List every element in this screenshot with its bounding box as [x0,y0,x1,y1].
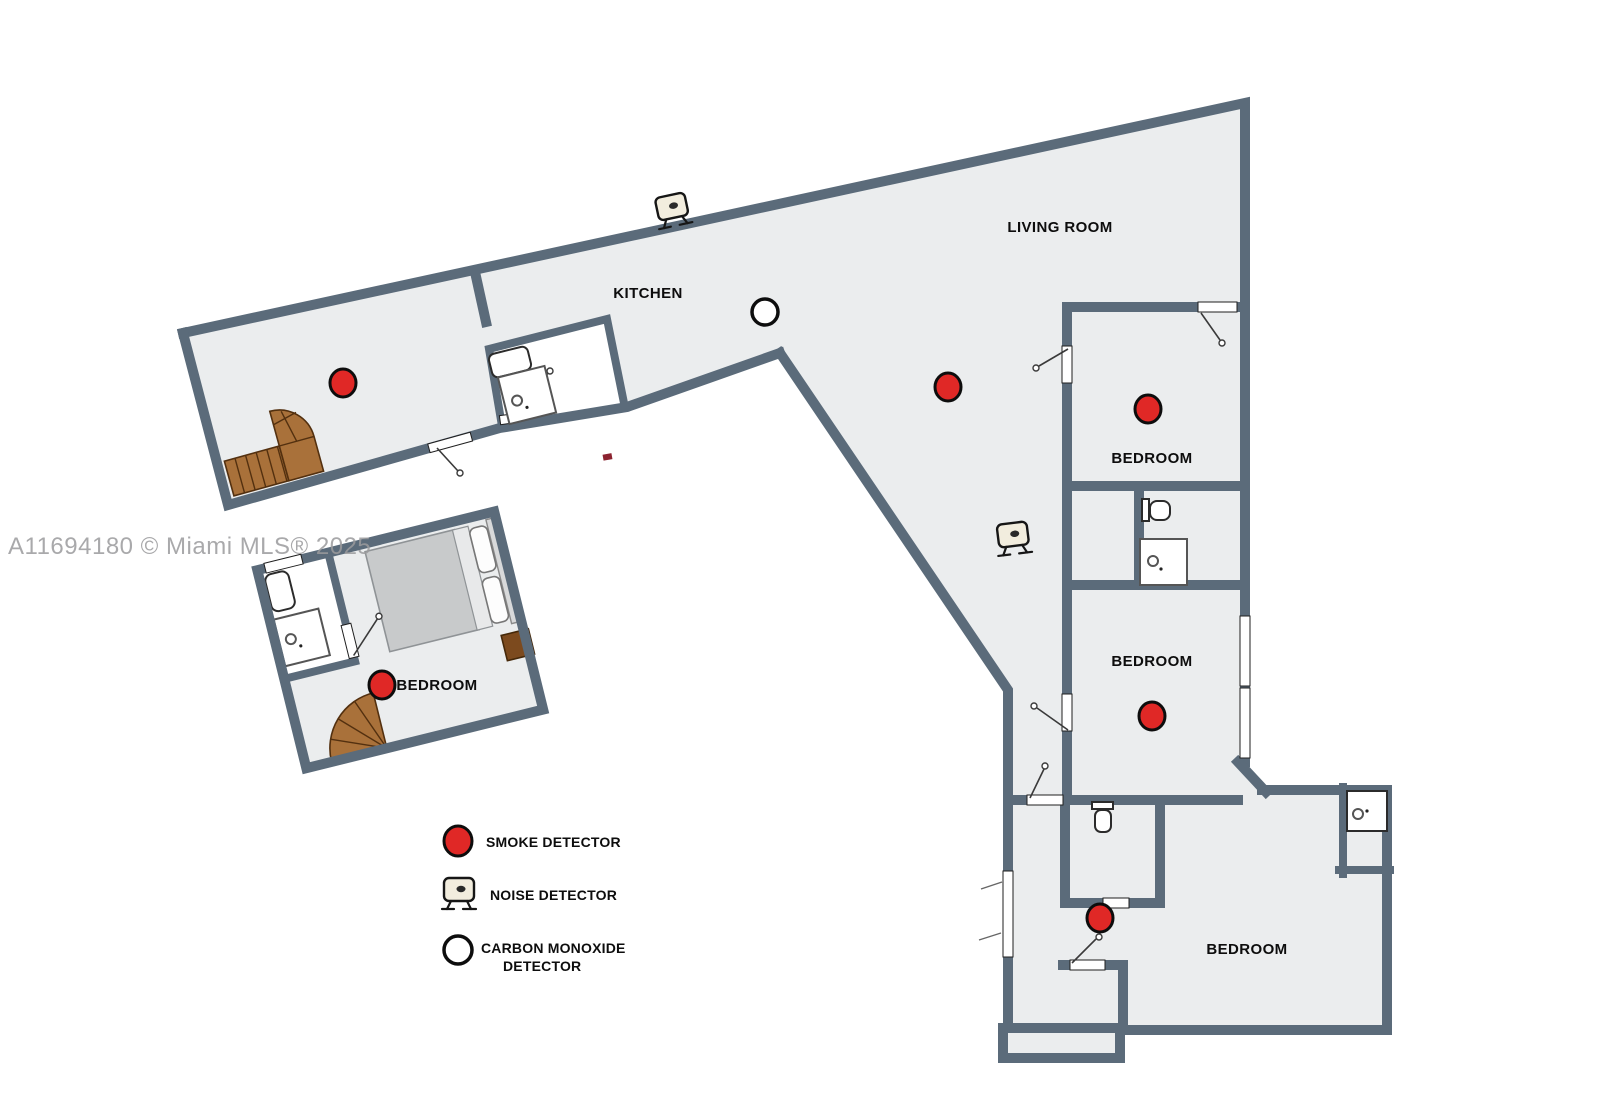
legend-noise-detector-icon [442,878,476,909]
legend-co-label-line1: CARBON MONOXIDE [481,940,626,956]
legend-smoke-label: SMOKE DETECTOR [486,834,621,850]
smoke-detector-icon [1087,904,1113,932]
floor-plan-page: KITCHEN LIVING ROOM BEDROOM BEDROOM BEDR… [0,0,1600,1109]
smoke-detector-icon [369,671,395,699]
carbon-monoxide-detector-icon [752,299,778,325]
wing-bath-shower [498,366,556,424]
bedroom-top-right-label: BEDROOM [1111,450,1192,467]
smoke-detector-icon [935,373,961,401]
legend-noise-label: NOISE DETECTOR [490,887,617,903]
bedroom-mid-right-label: BEDROOM [1111,653,1192,670]
smoke-detector-icon [1135,395,1161,423]
hallway-window [1003,871,1013,957]
bathroom-shower [1140,539,1187,585]
legend-co-detector-icon [444,936,472,964]
closet-a-floor [1008,963,1123,1028]
smoke-detector-icon [330,369,356,397]
bedroom2-window-lower [1240,688,1250,758]
bedroom-detached-label: BEDROOM [396,677,477,694]
legend-smoke-detector-icon [444,826,472,856]
floor-plan-canvas: KITCHEN LIVING ROOM BEDROOM BEDROOM BEDR… [0,0,1600,1109]
legend: SMOKE DETECTOR NOISE DETECTOR CARBON MON… [442,826,626,974]
bedroom2-left-door-opening [1062,694,1072,731]
mls-watermark: A11694180 © Miami MLS® 2025 [8,533,371,560]
kitchen-label: KITCHEN [613,285,682,302]
small-red-mark [603,453,613,460]
hallway-door-opening [1027,795,1063,805]
wing-door-swing [437,448,458,471]
bedroom-bottom-right-label: BEDROOM [1206,941,1287,958]
bottom-bedroom-shower [1347,791,1387,831]
closet-door-opening [1070,960,1105,970]
bedroom2-window-upper [1240,616,1250,686]
bathroom-toilet [1142,499,1170,521]
smoke-detector-icon [1139,702,1165,730]
legend-co-label-line2: DETECTOR [503,958,581,974]
bedroom1-top-door-opening [1198,302,1237,312]
living-room-label: LIVING ROOM [1007,219,1112,236]
toilet-room-toilet [1092,802,1113,832]
